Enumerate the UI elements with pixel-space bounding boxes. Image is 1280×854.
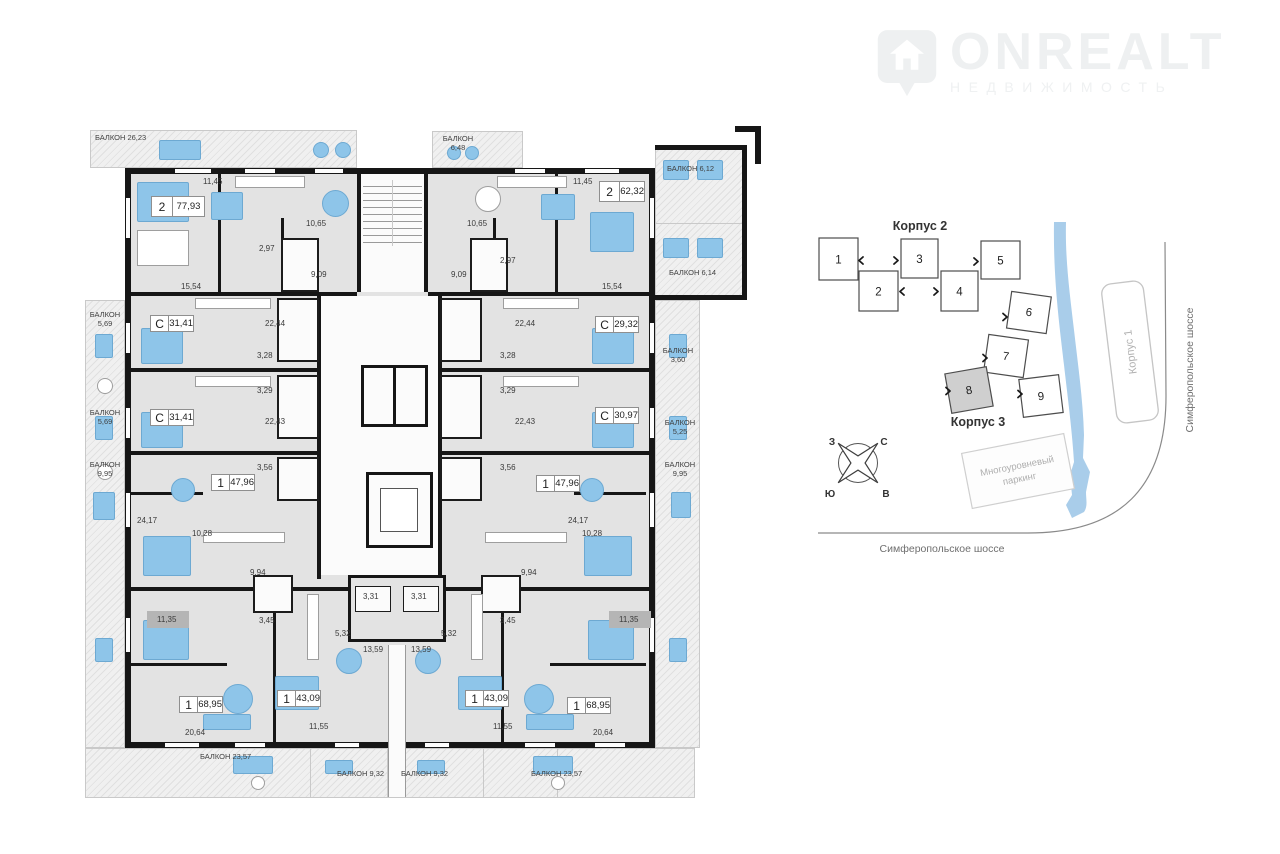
block-number: 2: [875, 287, 881, 299]
balcony-label: БАЛКОН 23,57: [200, 752, 251, 761]
block-4[interactable]: 4: [941, 271, 978, 311]
furniture-sofa: [526, 714, 574, 730]
dim-label: 22,43: [265, 417, 285, 426]
furniture-bed: [143, 536, 191, 576]
dim-label: 15,54: [602, 282, 622, 291]
balcony-label: БАЛКОН 6,14: [669, 268, 716, 277]
balcony-table: [551, 776, 565, 790]
furniture-table: [475, 186, 501, 212]
dim-label: 20,64: [185, 728, 205, 737]
window: [335, 743, 359, 747]
block-number: 4: [956, 287, 963, 299]
window: [165, 743, 199, 747]
dim-label: 22,43: [515, 417, 535, 426]
dim-label: 11,45: [573, 177, 592, 186]
street-label-right: Симферопольское шоссе: [1184, 307, 1196, 432]
apartment-type: С: [151, 316, 169, 331]
dim-label: 3,56: [500, 463, 516, 472]
furniture-bed: [141, 328, 183, 364]
apartment-area: 43,09: [484, 691, 508, 706]
svg-text:Симферопольское шоссе: Симферопольское шоссе: [1184, 307, 1196, 432]
dim-label: 11,55: [493, 722, 512, 731]
floor-plan: 2 77,93 2 62,32 С 31,41 С 29,32 С 31,41 …: [85, 118, 765, 810]
compass-south: Ю: [825, 489, 835, 500]
bathroom: [470, 238, 508, 292]
window: [235, 743, 265, 747]
dim-label: 10,65: [467, 219, 487, 228]
balcony-chair: [335, 142, 351, 158]
apartment-type: 1: [180, 697, 198, 712]
balcony-furniture: [93, 492, 115, 520]
apartment-type: С: [151, 410, 169, 425]
furniture-bed: [592, 328, 634, 364]
furniture-bed: [137, 230, 189, 266]
bathroom: [440, 298, 482, 362]
korpus1-building: Корпус 1: [1101, 280, 1160, 424]
balcony-furniture: [697, 238, 723, 258]
balcony-label: БАЛКОН 9,95: [659, 460, 701, 478]
furniture-table: [524, 684, 554, 714]
dim-label: 3,28: [257, 351, 273, 360]
apartment-area: 68,95: [198, 697, 222, 712]
bathroom: [440, 457, 482, 501]
balcony-label: БАЛКОН 5,69: [84, 408, 126, 426]
window: [126, 198, 130, 238]
korpus2-label: Корпус 2: [893, 219, 948, 233]
onrealt-logo: ONREALT НЕДВИЖИМОСТЬ: [874, 26, 1225, 106]
bathroom: [277, 457, 319, 501]
furniture-sofa: [203, 714, 251, 730]
balcony-table: [251, 776, 265, 790]
wall-stair: [424, 168, 428, 292]
onrealt-pin-icon: [874, 26, 940, 106]
wall-divider: [128, 451, 317, 455]
wall-right: [649, 168, 655, 748]
dim-label: 9,94: [250, 568, 266, 577]
dim-label: 3,45: [500, 616, 516, 625]
balcony-label: БАЛКОН 9,32: [337, 769, 384, 778]
dim-label: 10,28: [192, 529, 212, 538]
dim-label: 3,31: [363, 592, 379, 601]
wall-partition: [550, 663, 646, 666]
kitchen-counter: [235, 176, 305, 188]
balcony-furniture: [159, 140, 201, 160]
wall-divider: [442, 368, 652, 372]
apartment-area: 77,93: [173, 197, 204, 216]
apartment-type: 1: [466, 691, 484, 706]
dim-label: 13,59: [411, 645, 431, 654]
apartment-label: С 31,41: [150, 315, 194, 332]
logo-subtitle: НЕДВИЖИМОСТЬ: [950, 79, 1225, 95]
window: [126, 323, 130, 353]
apartment-label: С 31,41: [150, 409, 194, 426]
block-1[interactable]: 1: [819, 238, 858, 280]
balcony-furniture: [671, 492, 691, 518]
kitchen-counter: [195, 298, 271, 309]
balcony-chair: [313, 142, 329, 158]
window: [245, 169, 275, 173]
dim-label: 9,09: [451, 270, 467, 279]
window: [425, 743, 449, 747]
balcony-label: БАЛКОН 3,60: [657, 346, 699, 364]
balcony-left-strip: [85, 300, 125, 748]
bathroom: [281, 238, 319, 292]
stair-rail: [392, 180, 393, 246]
dim-label: 2,97: [259, 244, 275, 253]
block-number: 3: [916, 254, 922, 266]
furniture-armchair: [171, 478, 195, 502]
furniture-table: [336, 648, 362, 674]
logo-text: ONREALT НЕДВИЖИМОСТЬ: [950, 26, 1225, 95]
wall-divider: [446, 587, 652, 591]
kitchen-counter: [503, 298, 579, 309]
apartment-area: 68,95: [586, 698, 610, 713]
dim-label: 11,45: [203, 177, 222, 186]
wall-wing-bottom: [655, 295, 747, 300]
balcony-label: БАЛКОН 6,48: [437, 134, 479, 152]
dim-label: 22,44: [515, 319, 535, 328]
apartment-label: 2 77,93: [151, 196, 205, 217]
block-5[interactable]: 5: [981, 241, 1020, 279]
street-label-bottom: Симферопольское шоссе: [880, 543, 1005, 555]
window: [650, 493, 654, 527]
bathroom: [253, 575, 293, 613]
apartment-type: С: [596, 408, 614, 423]
apartment-area: 47,96: [230, 475, 254, 490]
apartment-area: 31,41: [169, 410, 193, 425]
apartment-label: 2 62,32: [599, 181, 645, 202]
wall-divider: [128, 368, 317, 372]
window: [175, 169, 211, 173]
kitchen-counter: [307, 594, 319, 660]
apartment-area: 47,96: [555, 476, 579, 491]
bathroom: [440, 375, 482, 439]
window: [585, 169, 619, 173]
kitchen-counter: [497, 176, 567, 188]
dim-label: 2,97: [500, 256, 516, 265]
apartment-type: 1: [537, 476, 555, 491]
wall-divider: [442, 451, 652, 455]
apartment-label: 1 43,09: [277, 690, 321, 707]
window: [515, 169, 545, 173]
dim-label: 15,54: [181, 282, 201, 291]
dim-label: 3,29: [257, 386, 273, 395]
block-2[interactable]: 2: [859, 271, 898, 311]
site-plan: Корпус 2 1 3 5 2 4 6 7 8 9 Корпус 3: [800, 200, 1280, 572]
balcony-label: БАЛКОН 9,32: [401, 769, 448, 778]
apartment-label: 1 47,96: [211, 474, 255, 491]
apartment-area: 30,97: [614, 408, 638, 423]
bathroom: [277, 375, 319, 439]
dim-label: 11,35: [157, 615, 176, 624]
parking-building: Многоуровневый паркинг: [962, 434, 1075, 509]
furniture-bed: [590, 212, 634, 252]
window: [315, 169, 343, 173]
dim-label: 11,35: [619, 615, 638, 624]
window: [595, 743, 625, 747]
dim-label: 3,45: [259, 616, 275, 625]
apartment-label: С 30,97: [595, 407, 639, 424]
balcony-divider: [483, 748, 484, 798]
wardrobe: [485, 532, 567, 543]
window: [650, 408, 654, 438]
compass-east: В: [882, 489, 889, 500]
apartment-label: 1 47,96: [536, 475, 580, 492]
furniture-table: [322, 190, 349, 217]
apartment-area: 31,41: [169, 316, 193, 331]
furniture-table: [223, 684, 253, 714]
apartment-label: 1 68,95: [179, 696, 223, 713]
dim-label: 3,29: [500, 386, 516, 395]
dim-label: 3,28: [500, 351, 516, 360]
apartment-type: 2: [152, 197, 173, 216]
elevator-divider: [393, 365, 396, 427]
balcony-table: [97, 378, 113, 394]
elevator-cab: [380, 488, 418, 532]
wall-partition: [555, 174, 558, 292]
apartment-label: С 29,32: [595, 316, 639, 333]
block-8-highlighted[interactable]: 8: [945, 367, 993, 414]
balcony-divider: [655, 223, 747, 224]
dim-label: 24,17: [137, 516, 157, 525]
dim-label: 10,28: [582, 529, 602, 538]
furniture-rug: [211, 192, 243, 220]
balcony-label: БАЛКОН 5,69: [84, 310, 126, 328]
block-9[interactable]: 9: [1019, 375, 1063, 418]
apartment-area: 62,32: [620, 182, 644, 201]
balcony-label: БАЛКОН 23,57: [531, 769, 582, 778]
block-7[interactable]: 7: [984, 334, 1029, 377]
compass-icon: З С Ю В: [818, 423, 897, 502]
balcony-label: БАЛКОН 9,95: [84, 460, 126, 478]
dim-label: 3,56: [257, 463, 273, 472]
balcony-right-strip: [655, 300, 700, 748]
window: [126, 408, 130, 438]
dim-label: 9,09: [311, 270, 327, 279]
wall-left: [125, 168, 131, 748]
wardrobe: [203, 532, 285, 543]
bathroom: [481, 575, 521, 613]
dim-label: 20,64: [593, 728, 613, 737]
apartment-type: 1: [212, 475, 230, 490]
dim-label: 11,55: [309, 722, 328, 731]
block-number: 1: [835, 255, 841, 267]
balcony-label: БАЛКОН 26,23: [95, 133, 146, 142]
wall-partition: [131, 663, 227, 666]
dim-label: 10,65: [306, 219, 326, 228]
window: [650, 323, 654, 353]
balcony-furniture: [663, 238, 689, 258]
apartment-area: 29,32: [614, 317, 638, 332]
balcony-furniture: [95, 334, 113, 358]
compass-north: С: [880, 437, 887, 448]
apartment-label: 1 68,95: [567, 697, 611, 714]
wall-partition: [501, 591, 504, 742]
block-number: 5: [997, 256, 1003, 268]
bathroom: [277, 298, 319, 362]
balcony-divider: [310, 748, 311, 798]
balcony-furniture: [95, 638, 113, 662]
apartment-type: 1: [278, 691, 296, 706]
balcony-label: БАЛКОН 5,25: [659, 418, 701, 436]
furniture-bed: [584, 536, 632, 576]
apartment-type: 1: [568, 698, 586, 713]
wall-wing-right: [742, 145, 747, 300]
kitchen-counter: [471, 594, 483, 660]
window: [650, 198, 654, 238]
logo-brand: ONREALT: [950, 26, 1225, 78]
wall-divider: [428, 292, 652, 296]
dim-label: 5,32: [441, 629, 457, 638]
wall-wing-top: [655, 145, 747, 150]
wall-stub: [755, 126, 761, 164]
window: [126, 618, 130, 652]
window: [525, 743, 555, 747]
apartment-type: 2: [600, 182, 620, 201]
apartment-area: 43,09: [296, 691, 320, 706]
dim-label: 24,17: [568, 516, 588, 525]
korpus3-label: Корпус 3: [951, 415, 1006, 429]
wall-partition: [273, 591, 276, 742]
dim-label: 13,59: [363, 645, 383, 654]
furniture-sofa: [541, 194, 575, 220]
block-3[interactable]: 3: [901, 239, 938, 278]
furniture-armchair: [580, 478, 604, 502]
apartment-label: 1 43,09: [465, 690, 509, 707]
dim-label: 22,44: [265, 319, 285, 328]
dim-label: 5,32: [335, 629, 351, 638]
wall-divider: [128, 587, 348, 591]
balcony-furniture: [669, 638, 687, 662]
page: { "logo": { "brand": "ONREALT", "subtitl…: [0, 0, 1280, 854]
balcony-label: БАЛКОН 6,12: [667, 164, 714, 173]
dim-label: 9,94: [521, 568, 537, 577]
compass-west: З: [829, 437, 835, 448]
window: [126, 493, 130, 527]
dim-label: 3,31: [411, 592, 427, 601]
apartment-type: С: [596, 317, 614, 332]
block-6[interactable]: 6: [1007, 291, 1052, 333]
